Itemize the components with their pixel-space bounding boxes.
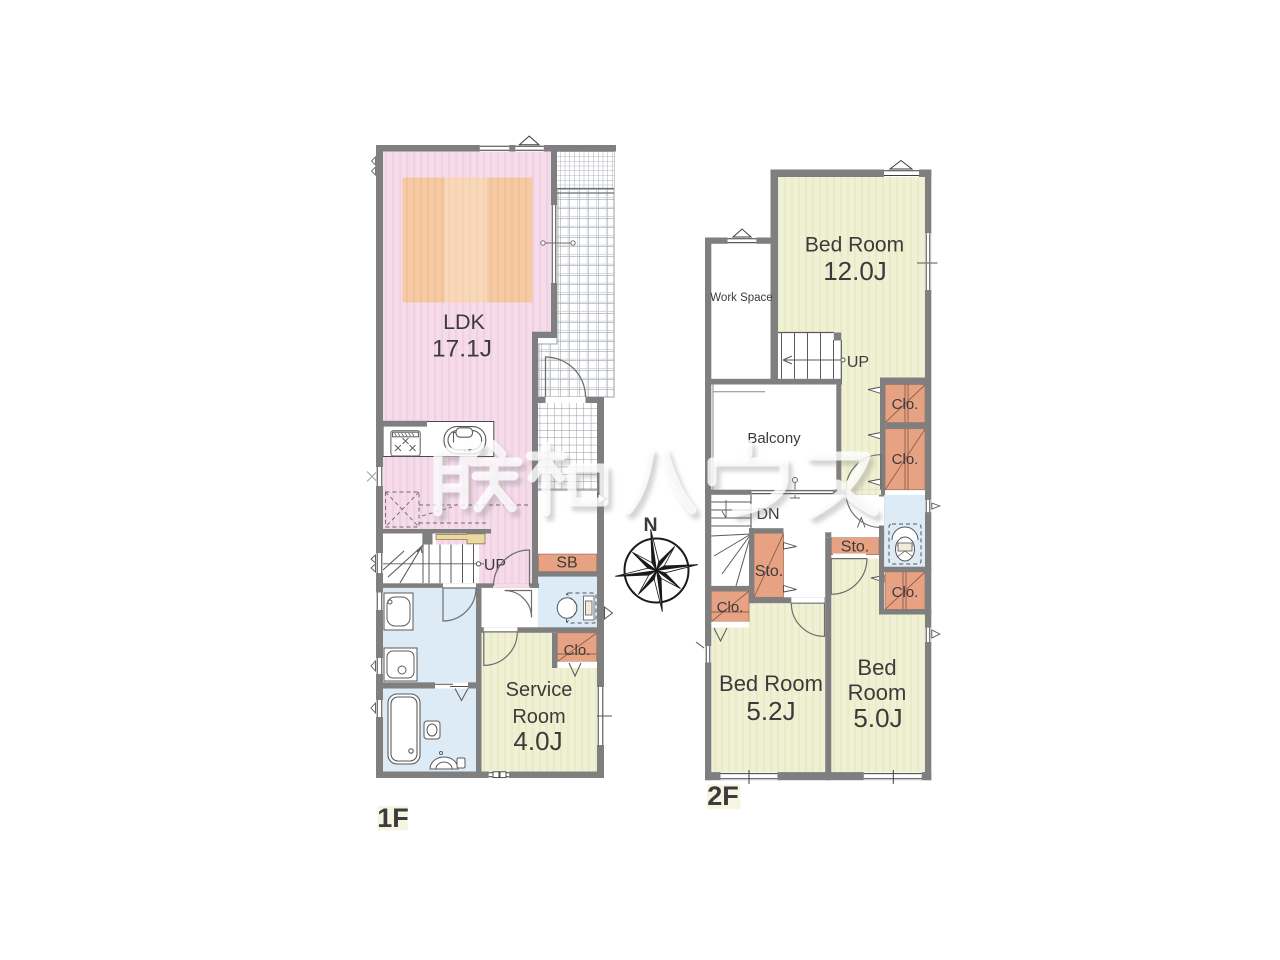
svg-text:4.0J: 4.0J bbox=[513, 726, 562, 756]
svg-text:Service: Service bbox=[506, 679, 573, 701]
svg-text:5.0J: 5.0J bbox=[853, 703, 902, 733]
svg-text:Balcony: Balcony bbox=[747, 430, 801, 447]
svg-text:UP: UP bbox=[847, 354, 869, 371]
svg-text:Clo.: Clo. bbox=[892, 451, 919, 468]
svg-text:Clo.: Clo. bbox=[717, 599, 744, 616]
svg-text:2F: 2F bbox=[707, 781, 739, 811]
svg-text:Clo.: Clo. bbox=[892, 396, 919, 413]
svg-text:5.2J: 5.2J bbox=[746, 696, 795, 726]
svg-text:Bed: Bed bbox=[857, 655, 896, 680]
svg-text:Work Space: Work Space bbox=[710, 292, 772, 304]
svg-text:Room: Room bbox=[848, 680, 907, 705]
svg-text:1F: 1F bbox=[377, 803, 409, 833]
svg-text:Bed Room: Bed Room bbox=[719, 671, 823, 696]
svg-text:Bed Room: Bed Room bbox=[805, 234, 904, 257]
svg-text:Clo.: Clo. bbox=[892, 584, 919, 601]
svg-text:Room: Room bbox=[512, 706, 565, 728]
svg-text:Sto.: Sto. bbox=[755, 563, 783, 580]
svg-text:N: N bbox=[643, 514, 657, 536]
svg-text:12.0J: 12.0J bbox=[823, 256, 887, 286]
svg-text:LDK: LDK bbox=[443, 310, 485, 334]
svg-text:Sto.: Sto. bbox=[841, 539, 869, 556]
svg-text:17.1J: 17.1J bbox=[432, 336, 492, 363]
svg-text:SB: SB bbox=[556, 555, 577, 572]
svg-text:UP: UP bbox=[484, 557, 506, 574]
svg-text:Clo.: Clo. bbox=[564, 642, 591, 659]
